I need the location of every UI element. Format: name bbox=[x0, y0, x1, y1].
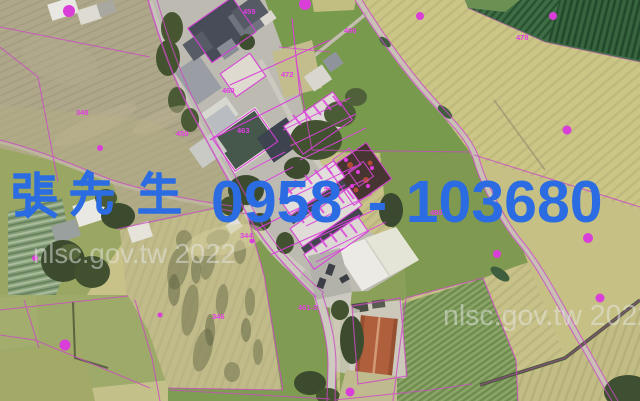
svg-text:472: 472 bbox=[281, 70, 294, 79]
svg-text:460: 460 bbox=[222, 86, 235, 95]
svg-text:478: 478 bbox=[516, 33, 529, 42]
svg-text:461-3: 461-3 bbox=[298, 303, 317, 312]
svg-text:346: 346 bbox=[212, 312, 225, 321]
svg-text:450: 450 bbox=[176, 129, 189, 138]
svg-text:466: 466 bbox=[344, 26, 357, 35]
svg-text:459: 459 bbox=[243, 7, 256, 16]
svg-text:348: 348 bbox=[76, 108, 89, 117]
svg-text:nlsc.gov.tw 2022: nlsc.gov.tw 2022 bbox=[443, 300, 640, 332]
svg-text:463: 463 bbox=[237, 126, 250, 135]
svg-text:nlsc.gov.tw 2022: nlsc.gov.tw 2022 bbox=[33, 238, 236, 269]
svg-text:0958 - 103680: 0958 - 103680 bbox=[211, 169, 603, 235]
